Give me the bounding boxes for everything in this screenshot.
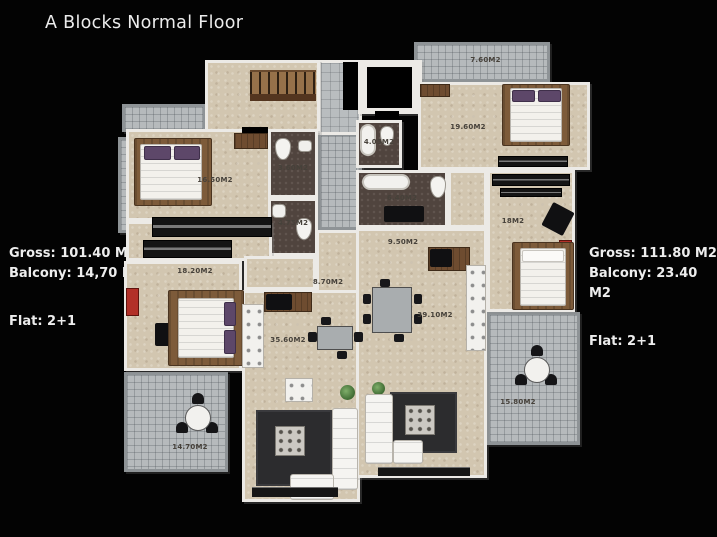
plant-icon [340,385,355,400]
wardrobe [492,174,570,186]
balcony-top-left [122,104,206,132]
room-label-right-bedroom2: 18M2 [492,218,534,226]
wardrobe [152,217,272,237]
coffee-table-icon [405,405,435,435]
screenshot: A Blocks Normal Floor Gross: 101.40 M2 B… [0,0,717,537]
chair-icon [531,345,543,356]
balcony-table-icon [524,357,550,383]
dresser-icon [234,133,268,149]
room-label-right-bath2: 6.40M2 [378,195,426,203]
cabinet [285,378,313,402]
sofa-icon [393,440,423,464]
elevator-gap [343,62,358,110]
door-right-flat [375,111,399,119]
right-balcony-text: Balcony: 23.40 M2 [589,264,717,304]
room-label-right-hall: 9.50M2 [380,239,426,247]
kitchen-counter [242,304,264,368]
dining-table-icon [317,326,353,350]
page-title: A Blocks Normal Floor [45,13,243,33]
chair-icon [321,317,331,325]
room-label-left-hall: 8.70M2 [304,279,352,287]
right-entry [448,170,487,228]
pillow-icon [224,302,236,326]
dining-table-icon [372,287,412,333]
kitchen-counter [466,265,486,351]
room-label-right-living: 39.10M2 [412,312,458,320]
chair-icon [394,334,404,342]
pillow-icon [224,330,236,354]
sink-icon [272,204,286,218]
sink-icon [298,140,312,152]
pillow-icon [144,146,171,160]
red-wardrobe [126,288,139,316]
room-label-left-bedroom2: 18.20M2 [170,268,220,276]
room-label-left-balcony: 14.70M2 [164,444,216,452]
cooktop-icon [266,294,292,310]
elevator-cab [367,67,412,108]
room-label-right-bath1: 4.05M2 [356,139,402,147]
wardrobe [500,188,562,197]
sofa-icon [332,408,358,490]
tv-console [378,467,470,476]
wardrobe [498,156,568,167]
pillow-icon [174,146,200,160]
wardrobe [143,240,232,258]
room-label-left-bath1: 3.60M2 [269,165,317,173]
cooktop-icon [430,249,452,267]
room-label-right-balcony-top: 7.60M2 [458,57,513,65]
pillow-icon [522,250,564,262]
sofa-icon [365,394,393,464]
stairs-icon [250,70,316,96]
dresser-icon [420,84,450,97]
right-flat-type-text: Flat: 2+1 [589,332,717,352]
vanity [384,206,424,222]
stair-rail [250,94,316,101]
pillow-icon [538,90,561,102]
balcony-table-icon [185,405,211,431]
right-gross-text: Gross: 111.80 M2 [589,244,717,264]
chair-icon [363,294,371,304]
room-label-right-bedroom1: 19.60M2 [443,124,493,132]
chair-icon [414,294,422,304]
coffee-table-icon [275,426,305,456]
room-label-right-balcony: 15.80M2 [494,399,542,407]
floor-plan: 16.50M2 3.60M2 4.75M2 18.20M2 8.70M2 35.… [118,38,600,516]
chair-icon [380,279,390,287]
pillow-icon [512,90,535,102]
right-flat-info: Gross: 111.80 M2 Balcony: 23.40 M2 Flat:… [589,244,717,352]
chair-icon [192,393,204,404]
tv-console [252,487,338,497]
room-label-left-living: 35.60M2 [264,337,312,345]
bathtub-icon [362,174,410,190]
room-label-left-bath2: 4.75M2 [269,220,317,228]
chair-icon [354,332,363,342]
chair-icon [363,314,371,324]
chair-icon [337,351,347,359]
room-label-left-bedroom1: 16.50M2 [190,177,240,185]
